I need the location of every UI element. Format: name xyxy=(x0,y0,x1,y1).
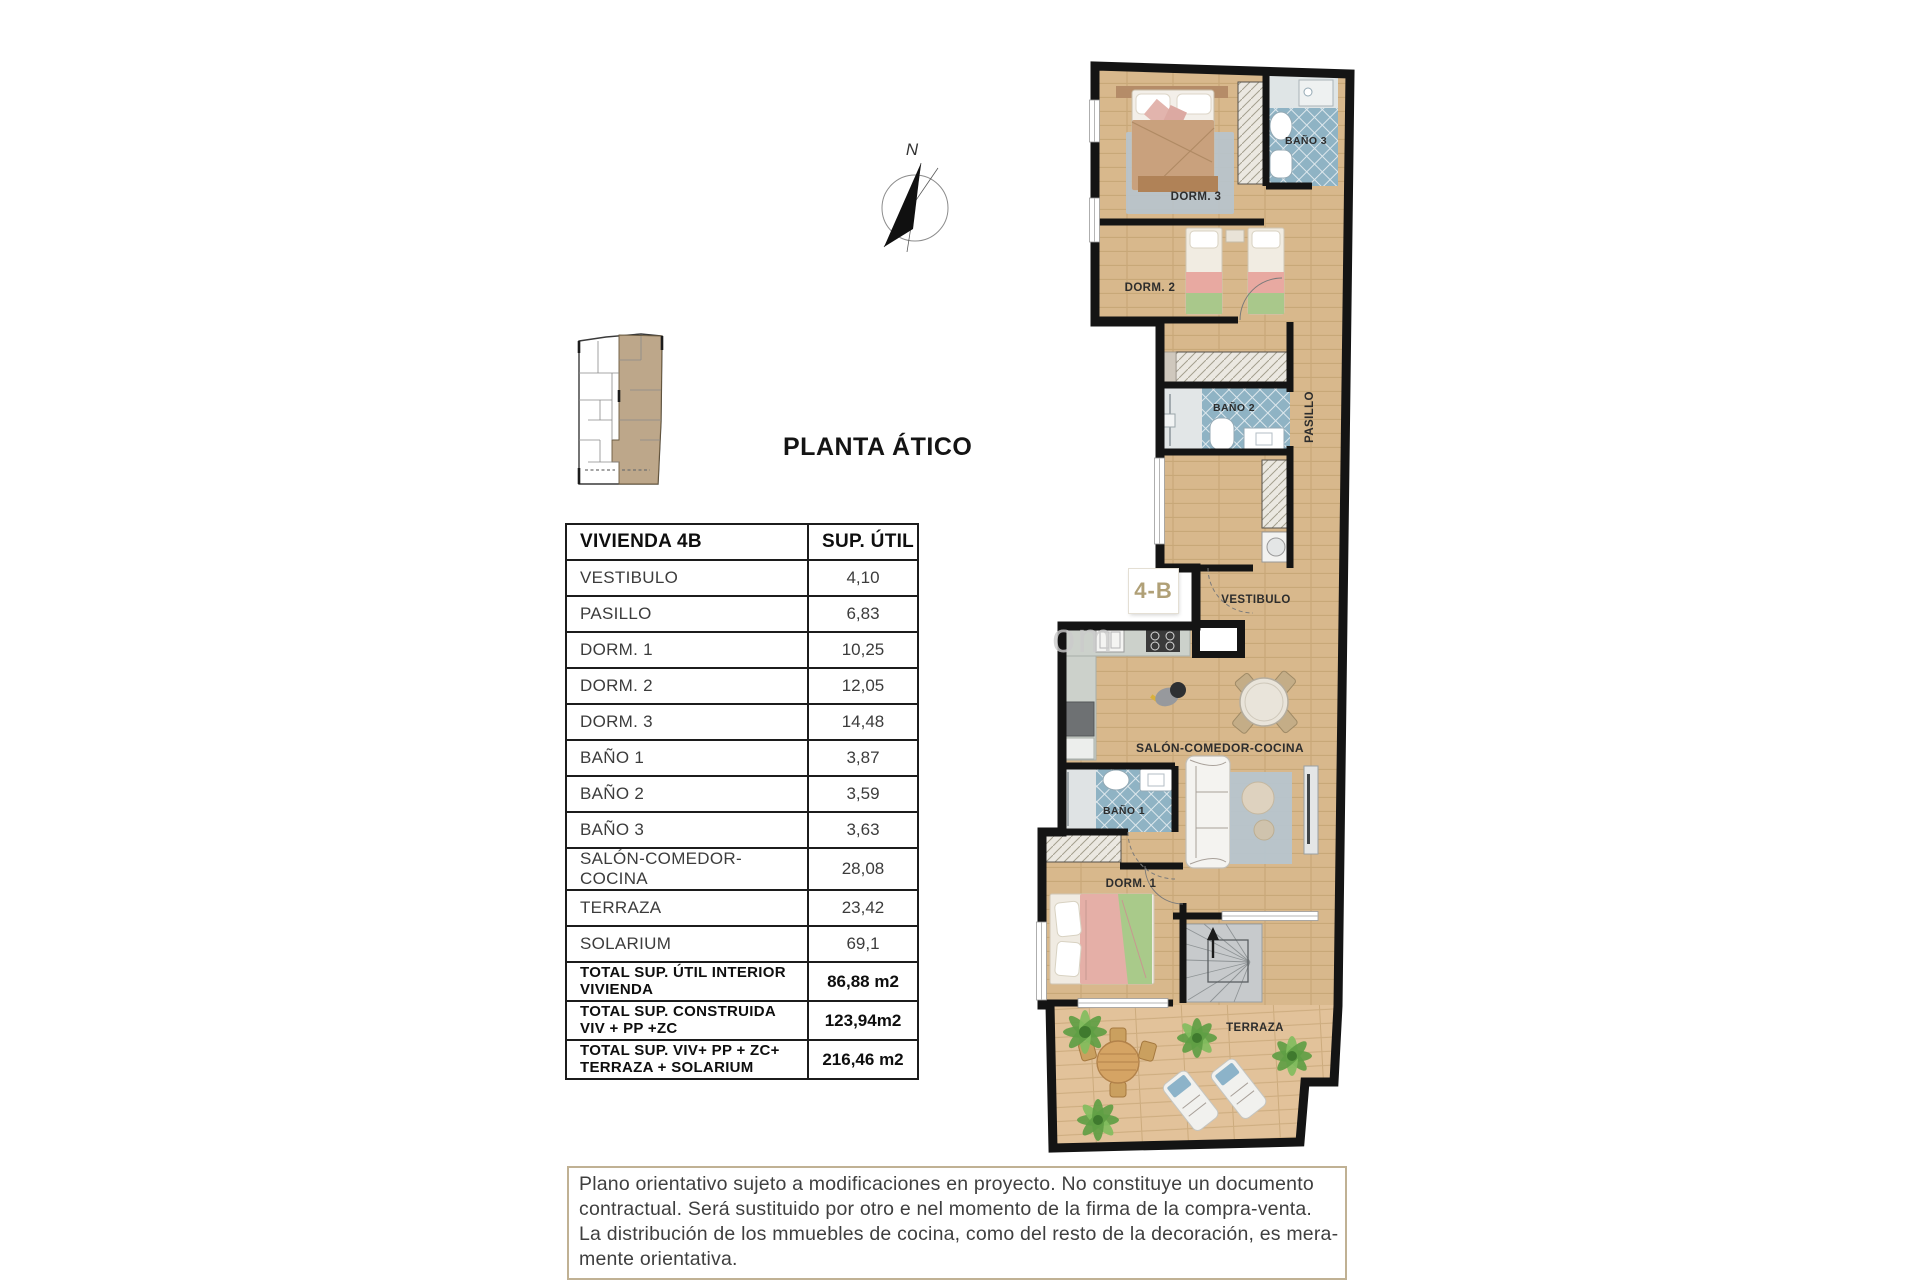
hall-closet xyxy=(1262,460,1290,528)
room-area-cell: 6,83 xyxy=(808,596,918,632)
sofa xyxy=(1186,756,1230,868)
table-header-row: VIVIENDA 4B SUP. ÚTIL xyxy=(566,524,918,560)
room-area-cell: 28,08 xyxy=(808,848,918,890)
total-label-line: TOTAL SUP. VIV+ PP + ZC+ xyxy=(580,1043,807,1060)
stairs xyxy=(1186,924,1262,1002)
table-row: DORM. 3 14,48 xyxy=(566,704,918,740)
total-label-line: TOTAL SUP. ÚTIL INTERIOR xyxy=(580,965,807,982)
total-area-cell: 86,88 m2 xyxy=(808,962,918,1001)
table-row: SALÓN-COMEDOR-COCINA 28,08 xyxy=(566,848,918,890)
room-name-cell: VESTIBULO xyxy=(566,560,808,596)
page-title: PLANTA ÁTICO xyxy=(783,433,972,462)
room-area-cell: 12,05 xyxy=(808,668,918,704)
room-area-cell: 4,10 xyxy=(808,560,918,596)
bano3-room xyxy=(1266,76,1338,186)
room-label-dorm1: DORM. 1 xyxy=(1106,878,1157,890)
room-name-cell: BAÑO 1 xyxy=(566,740,808,776)
table-row: BAÑO 1 3,87 xyxy=(566,740,918,776)
table-header-name: VIVIENDA 4B xyxy=(566,524,808,560)
total-label-line: TERRAZA + SOLARIUM xyxy=(580,1060,807,1077)
total-area-cell: 123,94m2 xyxy=(808,1001,918,1040)
table-row: BAÑO 2 3,59 xyxy=(566,776,918,812)
room-label-bano3: BAÑO 3 xyxy=(1285,135,1327,147)
compass-north-label: N xyxy=(906,140,918,160)
total-label-line: VIVIENDA xyxy=(580,982,807,999)
disclaimer-line: La distribución de los mmuebles de cocin… xyxy=(579,1222,1335,1247)
room-name-cell: SOLARIUM xyxy=(566,926,808,962)
total-label-line: VIV + PP +ZC xyxy=(580,1021,807,1038)
room-name-cell: SALÓN-COMEDOR-COCINA xyxy=(566,848,808,890)
room-area-cell: 14,48 xyxy=(808,704,918,740)
room-label-dorm2: DORM. 2 xyxy=(1125,282,1176,294)
table-total-row: TOTAL SUP. ÚTIL INTERIOR VIVIENDA 86,88 … xyxy=(566,962,918,1001)
floor-plan-drawing xyxy=(0,0,1920,1280)
room-label-bano2: BAÑO 2 xyxy=(1213,402,1255,414)
bano2-room xyxy=(1160,388,1290,452)
room-label-terraza: TERRAZA xyxy=(1226,1022,1284,1034)
dorm1-bed xyxy=(1050,894,1154,984)
watermark-text: om xyxy=(1052,614,1114,662)
table-header-area: SUP. ÚTIL xyxy=(808,524,918,560)
unit-badge: 4-B xyxy=(1129,569,1178,613)
room-name-cell: TERRAZA xyxy=(566,890,808,926)
tv-sideboard xyxy=(1304,766,1318,854)
room-area-cell: 10,25 xyxy=(808,632,918,668)
room-name-cell: DORM. 1 xyxy=(566,632,808,668)
plan-sheet: N PLANTA ÁTICO om VIVIENDA 4B SUP. ÚTIL … xyxy=(0,0,1920,1280)
washer xyxy=(1262,532,1290,562)
room-name-cell: PASILLO xyxy=(566,596,808,632)
room-name-cell: BAÑO 2 xyxy=(566,776,808,812)
location-minimap xyxy=(579,334,662,484)
room-label-pasillo: PASILLO xyxy=(1304,391,1316,443)
room-label-dorm3: DORM. 3 xyxy=(1171,191,1222,203)
total-name-cell: TOTAL SUP. CONSTRUIDA VIV + PP +ZC xyxy=(566,1001,808,1040)
room-label-bano1: BAÑO 1 xyxy=(1103,805,1145,817)
total-name-cell: TOTAL SUP. VIV+ PP + ZC+ TERRAZA + SOLAR… xyxy=(566,1040,808,1079)
table-row: PASILLO 6,83 xyxy=(566,596,918,632)
disclaimer-line: mente orientativa. xyxy=(579,1247,1335,1272)
room-name-cell: DORM. 2 xyxy=(566,668,808,704)
bano1-room xyxy=(1062,766,1175,832)
table-total-row: TOTAL SUP. VIV+ PP + ZC+ TERRAZA + SOLAR… xyxy=(566,1040,918,1079)
disclaimer-box: Plano orientativo sujeto a modificacione… xyxy=(567,1166,1347,1280)
room-name-cell: DORM. 3 xyxy=(566,704,808,740)
room-area-cell: 3,63 xyxy=(808,812,918,848)
room-name-cell: BAÑO 3 xyxy=(566,812,808,848)
disclaimer-line: contractual. Será sustituido por otro e … xyxy=(579,1197,1335,1222)
table-row: SOLARIUM 69,1 xyxy=(566,926,918,962)
dining-table xyxy=(1231,670,1298,734)
room-label-vestibulo: VESTIBULO xyxy=(1221,594,1290,606)
table-total-row: TOTAL SUP. CONSTRUIDA VIV + PP +ZC 123,9… xyxy=(566,1001,918,1040)
room-area-cell: 3,87 xyxy=(808,740,918,776)
disclaimer-line: Plano orientativo sujeto a modificacione… xyxy=(579,1172,1335,1197)
total-area-cell: 216,46 m2 xyxy=(808,1040,918,1079)
dorm3-bed xyxy=(1116,86,1228,192)
room-area-cell: 69,1 xyxy=(808,926,918,962)
table-row: DORM. 1 10,25 xyxy=(566,632,918,668)
salon-rug xyxy=(1230,772,1292,864)
room-area-cell: 3,59 xyxy=(808,776,918,812)
room-area-cell: 23,42 xyxy=(808,890,918,926)
table-row: VESTIBULO 4,10 xyxy=(566,560,918,596)
table-row: TERRAZA 23,42 xyxy=(566,890,918,926)
table-row: DORM. 2 12,05 xyxy=(566,668,918,704)
hall-wardrobe xyxy=(1176,352,1290,385)
apartment-plan xyxy=(1037,66,1351,1148)
room-label-salon: SALÓN-COMEDOR-COCINA xyxy=(1136,741,1304,755)
areas-table: VIVIENDA 4B SUP. ÚTIL VESTIBULO 4,10 PAS… xyxy=(565,523,919,1080)
total-label-line: TOTAL SUP. CONSTRUIDA xyxy=(580,1004,807,1021)
total-name-cell: TOTAL SUP. ÚTIL INTERIOR VIVIENDA xyxy=(566,962,808,1001)
dorm1-wardrobe xyxy=(1045,834,1121,862)
compass-icon xyxy=(882,163,948,252)
table-row: BAÑO 3 3,63 xyxy=(566,812,918,848)
